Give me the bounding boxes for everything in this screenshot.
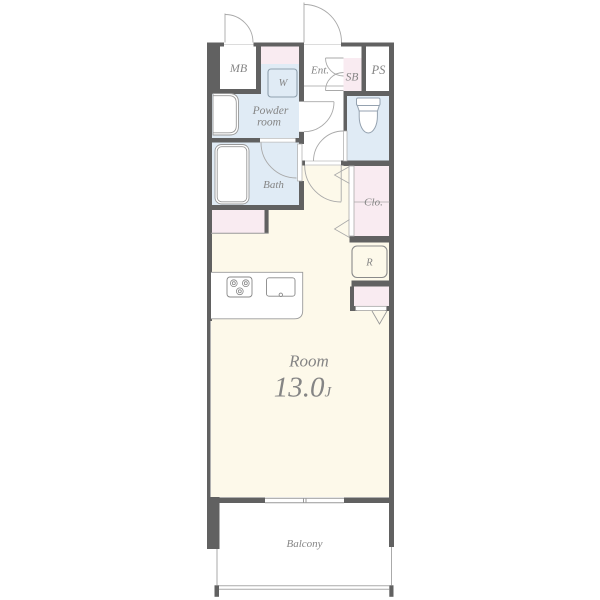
svg-text:Balcony: Balcony bbox=[286, 538, 322, 550]
svg-text:13.0J: 13.0J bbox=[274, 372, 333, 404]
svg-text:room: room bbox=[257, 117, 281, 129]
svg-text:SB: SB bbox=[346, 72, 359, 84]
svg-text:Bath: Bath bbox=[263, 179, 284, 191]
svg-text:Ent.: Ent. bbox=[310, 65, 329, 77]
svg-text:R: R bbox=[365, 258, 373, 269]
svg-text:Powder: Powder bbox=[252, 105, 289, 117]
svg-text:PS: PS bbox=[371, 63, 387, 77]
svg-text:W: W bbox=[279, 78, 289, 89]
svg-text:Clo.: Clo. bbox=[364, 197, 383, 209]
svg-text:MB: MB bbox=[229, 61, 248, 75]
svg-text:Room: Room bbox=[288, 352, 329, 371]
